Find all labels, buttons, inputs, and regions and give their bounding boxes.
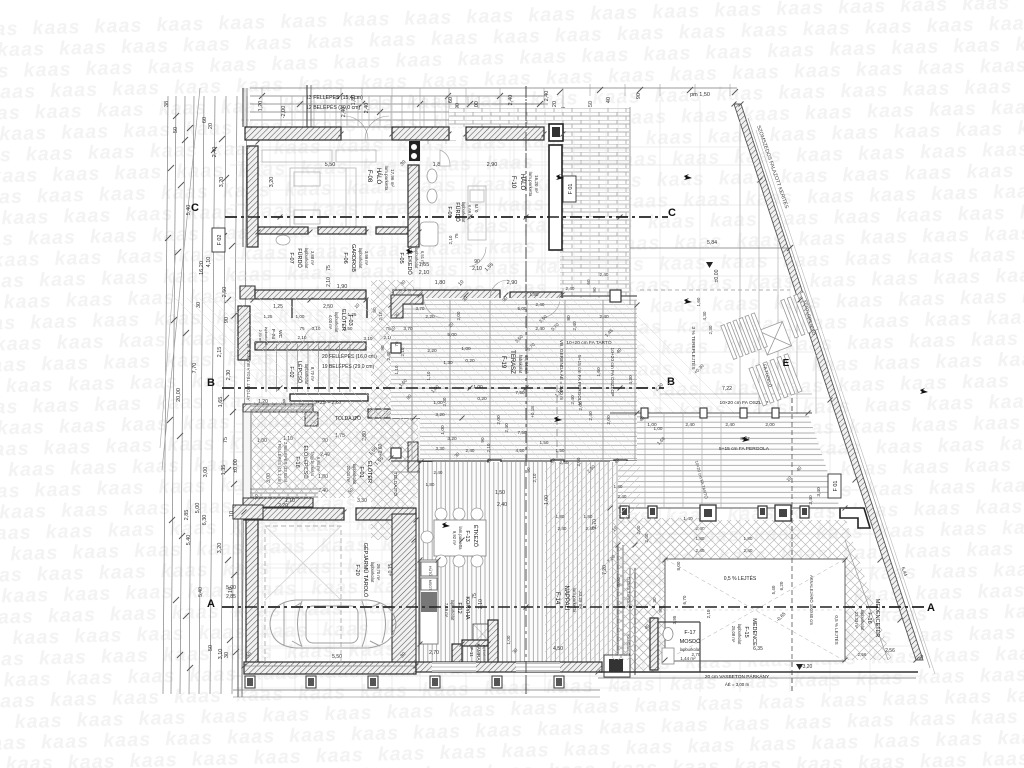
svg-text:3,40: 3,40	[808, 495, 814, 505]
svg-text:kaas: kaas	[112, 77, 161, 100]
svg-text:kaas: kaas	[705, 41, 754, 64]
svg-text:2,40: 2,40	[572, 321, 578, 331]
svg-text:2,90: 2,90	[507, 280, 518, 286]
svg-text:kaas: kaas	[486, 761, 535, 768]
svg-text:kaas: kaas	[1004, 600, 1024, 623]
svg-text:4,30: 4,30	[702, 311, 707, 320]
svg-text:kaas: kaas	[59, 36, 108, 59]
svg-text:kaas: kaas	[592, 86, 641, 109]
svg-text:C: C	[668, 207, 676, 219]
svg-text:kaas: kaas	[656, 168, 705, 191]
svg-text:HÁLÓ: HÁLÓ	[519, 174, 526, 191]
svg-text:2,10: 2,10	[419, 270, 430, 276]
svg-text:kaas: kaas	[362, 764, 411, 768]
svg-text:kaas: kaas	[546, 66, 595, 89]
svg-text:0,5 % LEJTÉS: 0,5 % LEJTÉS	[724, 575, 757, 582]
svg-text:1,25: 1,25	[348, 312, 357, 317]
svg-text:2,10: 2,10	[486, 443, 491, 452]
svg-text:kaas: kaas	[862, 310, 911, 333]
svg-text:kaas: kaas	[296, 597, 345, 620]
svg-text:3,99 m²: 3,99 m²	[364, 251, 369, 266]
svg-text:5,50: 5,50	[332, 654, 342, 660]
svg-text:3 % TEREPLEJTÉS: 3 % TEREPLEJTÉS	[690, 326, 697, 369]
svg-text:kaas: kaas	[778, 81, 827, 104]
svg-text:kaas: kaas	[926, 392, 975, 415]
svg-text:kaas: kaas	[183, 411, 232, 434]
svg-text:kaas: kaas	[845, 247, 894, 270]
svg-text:kaas: kaas	[0, 690, 37, 713]
svg-text:kaas: kaas	[935, 350, 984, 373]
svg-text:kaas: kaas	[3, 290, 52, 313]
svg-text:kaas: kaas	[191, 747, 240, 768]
svg-text:kaas: kaas	[65, 288, 114, 311]
svg-text:kaas: kaas	[1002, 516, 1024, 539]
svg-text:kaas: kaas	[944, 686, 993, 709]
svg-text:kaas: kaas	[63, 583, 112, 606]
svg-text:5,84: 5,84	[707, 240, 717, 246]
svg-text:kaas: kaas	[743, 103, 792, 126]
svg-text:kaas: kaas	[466, 5, 515, 28]
svg-text:kaas: kaas	[991, 96, 1024, 119]
svg-text:kaas: kaas	[643, 42, 692, 65]
svg-text:kaas: kaas	[262, 703, 311, 726]
svg-text:kaas: kaas	[922, 224, 971, 247]
svg-text:kaas: kaas	[333, 50, 382, 73]
svg-text:2,20: 2,20	[427, 348, 437, 354]
svg-text:kaas: kaas	[12, 626, 61, 649]
svg-text:3,20: 3,20	[269, 177, 275, 188]
svg-text:kaas: kaas	[696, 692, 745, 715]
svg-text:MSGT: MSGT	[428, 580, 432, 591]
svg-text:kaas: kaas	[0, 312, 17, 335]
svg-text:kaas: kaas	[968, 622, 1017, 645]
svg-text:kaas: kaas	[280, 10, 329, 33]
svg-text:50: 50	[173, 127, 179, 133]
svg-text:kaas: kaas	[94, 393, 143, 416]
svg-text:kaas: kaas	[34, 478, 83, 501]
svg-text:3,10: 3,10	[312, 326, 321, 331]
svg-text:TOLDAJTÓ: TOLDAJTÓ	[393, 472, 399, 496]
svg-text:5,00: 5,00	[518, 306, 527, 311]
svg-text:kaas: kaas	[92, 309, 141, 332]
svg-text:-2,00: -2,00	[281, 106, 287, 119]
svg-text:5,00: 5,00	[195, 503, 201, 514]
svg-text:kaas: kaas	[174, 685, 223, 708]
svg-text:kaas: kaas	[61, 120, 110, 143]
svg-text:kaas: kaas	[116, 245, 165, 268]
svg-text:10+20 cm FA OSZLOP: 10+20 cm FA OSZLOP	[609, 348, 615, 397]
svg-text:kaas: kaas	[931, 182, 980, 205]
svg-text:20: 20	[208, 123, 214, 129]
svg-text:8,00: 8,00	[616, 577, 621, 586]
svg-text:2,56: 2,56	[858, 652, 867, 657]
svg-text:1,80: 1,80	[556, 514, 565, 519]
svg-text:23,33 m²: 23,33 m²	[854, 612, 859, 629]
svg-text:kaas: kaas	[127, 665, 176, 688]
svg-text:7,50: 7,50	[515, 390, 525, 396]
svg-text:kaas: kaas	[820, 689, 869, 712]
svg-text:40: 40	[606, 97, 612, 103]
svg-text:kaas: kaas	[76, 708, 125, 731]
svg-text:kaas: kaas	[610, 757, 659, 768]
svg-text:kaas: kaas	[625, 736, 674, 759]
svg-text:2,40: 2,40	[644, 533, 649, 542]
svg-text:kaas: kaas	[176, 159, 225, 182]
svg-text:F 02: F 02	[217, 234, 223, 245]
svg-text:kaas: kaas	[32, 394, 81, 417]
svg-text:kaas: kaas	[608, 64, 657, 87]
svg-text:2,40: 2,40	[212, 147, 218, 158]
svg-text:ÉTKEZŐ: ÉTKEZŐ	[472, 525, 479, 548]
svg-text:5,00: 5,00	[226, 585, 236, 591]
svg-text:kaas: kaas	[85, 57, 134, 80]
svg-text:kaas: kaas	[1006, 684, 1024, 707]
svg-text:lapburkolat: lapburkolat	[352, 464, 357, 485]
svg-text:kaas: kaas	[34, 100, 83, 123]
svg-text:kaas: kaas	[980, 664, 1024, 687]
svg-text:F-05: F-05	[398, 252, 404, 263]
svg-text:kaas: kaas	[997, 726, 1024, 749]
svg-text:2,00: 2,00	[456, 311, 461, 320]
svg-text:60: 60	[202, 117, 208, 123]
svg-text:HÁLÓ: HÁLÓ	[375, 168, 382, 185]
svg-text:kaas: kaas	[114, 161, 163, 184]
svg-text:kaas: kaas	[99, 182, 148, 205]
svg-text:kaas: kaas	[973, 412, 1022, 435]
svg-text:kaas: kaas	[45, 520, 94, 543]
svg-text:F-19: F-19	[500, 356, 506, 369]
svg-text:FÜRDŐ: FÜRDŐ	[296, 248, 303, 268]
svg-text:7,20: 7,20	[602, 565, 608, 575]
svg-text:F-20: F-20	[354, 564, 360, 575]
svg-text:MEDENCE: MEDENCE	[751, 618, 757, 646]
svg-text:1,00: 1,00	[473, 384, 483, 390]
svg-text:kaas: kaas	[953, 34, 1002, 57]
svg-text:2,80: 2,80	[362, 431, 368, 441]
svg-text:kaas: kaas	[902, 456, 951, 479]
svg-text:kaas: kaas	[105, 434, 154, 457]
svg-text:10+20 cm FA TARTÓ: 10+20 cm FA TARTÓ	[566, 339, 611, 346]
svg-text:kaas: kaas	[991, 474, 1024, 497]
svg-text:kaas: kaas	[510, 697, 559, 720]
svg-text:kaas: kaas	[913, 497, 962, 520]
svg-text:kaas: kaas	[0, 144, 12, 167]
svg-text:kaas: kaas	[842, 163, 891, 186]
svg-text:1,80: 1,80	[426, 482, 435, 487]
svg-text:kaas: kaas	[198, 621, 247, 644]
svg-text:kaas: kaas	[997, 348, 1024, 371]
svg-text:kaas: kaas	[125, 581, 174, 604]
svg-text:20,01 m²: 20,01 m²	[346, 466, 351, 483]
svg-text:kaas: kaas	[101, 266, 150, 289]
svg-text:kaas: kaas	[439, 741, 488, 764]
svg-text:kaas: kaas	[0, 38, 46, 61]
svg-text:kaas: kaas	[904, 161, 953, 184]
svg-text:kaas: kaas	[271, 52, 320, 75]
svg-text:90: 90	[380, 345, 385, 351]
svg-text:kaas: kaas	[298, 681, 347, 704]
svg-text:kaas: kaas	[37, 562, 86, 585]
svg-text:2,10: 2,10	[326, 277, 332, 287]
svg-text:kaas: kaas	[871, 267, 920, 290]
svg-text:8,70 m²: 8,70 m²	[310, 367, 315, 382]
svg-text:kaas: kaas	[360, 680, 409, 703]
svg-text:kaas: kaas	[364, 239, 413, 262]
svg-text:2,50: 2,50	[344, 326, 353, 331]
svg-text:kaas: kaas	[721, 250, 770, 273]
svg-text:kaas: kaas	[134, 539, 183, 562]
svg-text:3,30: 3,30	[357, 498, 367, 504]
svg-text:kaas: kaas	[484, 67, 533, 90]
svg-text:kaas: kaas	[977, 580, 1024, 603]
svg-text:kaas: kaas	[838, 373, 887, 396]
svg-text:kaas: kaas	[0, 164, 39, 187]
svg-text:F 01: F 01	[568, 183, 574, 194]
svg-text:kaas: kaas	[924, 308, 973, 331]
svg-text:75: 75	[472, 593, 478, 599]
svg-text:kaas: kaas	[39, 646, 88, 669]
svg-text:kaas: kaas	[971, 706, 1020, 729]
svg-text:kaas: kaas	[860, 226, 909, 249]
svg-text:kaas: kaas	[847, 709, 896, 732]
svg-text:kaas: kaas	[1019, 200, 1024, 223]
svg-text:0,20: 0,20	[477, 396, 487, 402]
svg-text:75: 75	[326, 265, 332, 271]
svg-text:kaas: kaas	[26, 142, 75, 165]
svg-text:kaas: kaas	[56, 331, 105, 354]
svg-text:kaas: kaas	[858, 142, 907, 165]
svg-text:5,40: 5,40	[186, 535, 192, 546]
svg-text:kaas: kaas	[50, 688, 99, 711]
svg-text:30: 30	[652, 597, 657, 603]
svg-text:±0,00: ±0,00	[714, 269, 720, 282]
svg-text:F-13: F-13	[464, 530, 470, 541]
svg-text:0,5 % LEJTÉS: 0,5 % LEJTÉS	[834, 615, 840, 644]
svg-text:2,50: 2,50	[222, 287, 228, 298]
svg-text:F-08: F-08	[366, 170, 372, 183]
svg-text:lam.parketta: lam.parketta	[458, 526, 463, 550]
svg-text:F-07: F-07	[288, 252, 294, 263]
svg-text:kaas: kaas	[929, 98, 978, 121]
svg-text:kaas: kaas	[966, 538, 1015, 561]
svg-text:kaas: kaas	[50, 79, 99, 102]
svg-text:2,40: 2,40	[364, 103, 370, 114]
svg-text:kaas: kaas	[101, 645, 150, 668]
svg-text:75: 75	[299, 326, 305, 331]
svg-text:2,40: 2,40	[434, 470, 443, 475]
svg-text:kaas: kaas	[493, 25, 542, 48]
svg-text:fabakolat: fabakolat	[518, 355, 523, 374]
svg-text:4,50: 4,50	[553, 646, 563, 652]
svg-text:2,10: 2,10	[706, 609, 711, 618]
svg-text:kaas: kaas	[794, 59, 843, 82]
svg-text:kaas: kaas	[617, 22, 666, 45]
svg-text:9,92 m²: 9,92 m²	[452, 531, 457, 546]
svg-text:3,20: 3,20	[435, 412, 445, 418]
svg-text:kaas: kaas	[285, 178, 334, 201]
svg-text:lapburkolat: lapburkolat	[737, 624, 742, 645]
svg-text:kaas: kaas	[732, 61, 781, 84]
svg-text:29,70 m²: 29,70 m²	[376, 564, 381, 581]
svg-text:kaas: kaas	[1, 206, 50, 229]
svg-text:2,70: 2,70	[692, 652, 701, 657]
svg-text:50: 50	[588, 101, 594, 107]
svg-text:kaas: kaas	[43, 436, 92, 459]
svg-text:kaas: kaas	[110, 602, 159, 625]
svg-text:lam.parketta: lam.parketta	[384, 166, 389, 191]
svg-text:1,60: 1,60	[596, 367, 602, 377]
svg-text:kaas: kaas	[982, 748, 1024, 768]
svg-text:kaas: kaas	[926, 14, 975, 37]
svg-text:3,30: 3,30	[436, 446, 445, 451]
svg-text:kaas: kaas	[0, 606, 34, 629]
svg-text:kaas: kaas	[873, 729, 922, 752]
svg-text:1,60: 1,60	[696, 297, 701, 306]
svg-text:kaas: kaas	[723, 712, 772, 735]
svg-text:2,40: 2,40	[588, 411, 594, 421]
svg-text:2,40: 2,40	[725, 422, 735, 428]
svg-text:kaas: kaas	[322, 618, 371, 641]
svg-text:1,80: 1,80	[696, 536, 705, 541]
svg-text:kaas: kaas	[634, 694, 683, 717]
svg-text:kaas: kaas	[88, 141, 137, 164]
svg-text:kaas: kaas	[962, 370, 1011, 393]
svg-text:kaas: kaas	[377, 742, 426, 765]
svg-text:1,00: 1,00	[654, 426, 663, 431]
svg-text:1,80: 1,80	[435, 280, 446, 286]
svg-text:kaas: kaas	[993, 558, 1024, 581]
svg-text:kaas: kaas	[519, 45, 568, 68]
svg-text:kaas: kaas	[935, 728, 984, 751]
svg-text:2,40: 2,40	[508, 95, 514, 106]
svg-text:lapburkolat: lapburkolat	[334, 312, 339, 333]
svg-text:kaas: kaas	[840, 79, 889, 102]
svg-text:kaas: kaas	[712, 292, 761, 315]
svg-text:8,00: 8,00	[676, 561, 681, 570]
svg-text:kaas: kaas	[891, 36, 940, 59]
svg-text:2,00: 2,00	[636, 525, 641, 534]
svg-text:GARDROB: GARDROB	[350, 244, 356, 272]
svg-text:1,55: 1,55	[419, 262, 430, 268]
svg-text:kaas: kaas	[940, 518, 989, 541]
svg-text:kaas: kaas	[127, 287, 176, 310]
svg-text:kaas: kaas	[121, 35, 170, 58]
svg-text:lapburkolat: lapburkolat	[370, 562, 375, 583]
svg-text:kaas: kaas	[548, 759, 597, 768]
svg-text:kaas: kaas	[0, 80, 37, 103]
svg-text:1,50: 1,50	[540, 440, 549, 445]
svg-text:kaas: kaas	[236, 683, 285, 706]
svg-text:kaas: kaas	[546, 675, 595, 698]
svg-text:F-09: F-09	[446, 206, 452, 217]
svg-text:1,00: 1,00	[296, 314, 305, 319]
svg-text:kaas: kaas	[96, 99, 145, 122]
svg-text:30: 30	[224, 652, 230, 658]
svg-text:lapburkolat: lapburkolat	[358, 248, 363, 269]
svg-text:F-16: F-16	[866, 612, 872, 623]
svg-text:kaas: kaas	[284, 556, 333, 579]
svg-text:MOSDÓ: MOSDÓ	[680, 638, 702, 645]
svg-text:kaas: kaas	[847, 331, 896, 354]
svg-text:1,90: 1,90	[337, 284, 348, 290]
svg-text:kaas: kaas	[351, 722, 400, 745]
svg-text:kaas: kaas	[716, 82, 765, 105]
svg-text:kaas: kaas	[687, 734, 736, 757]
svg-text:kaas: kaas	[23, 58, 72, 81]
svg-text:5,50: 5,50	[325, 162, 336, 168]
svg-text:kaas: kaas	[209, 54, 258, 77]
svg-text:kaas: kaas	[158, 97, 207, 120]
svg-text:kaas: kaas	[0, 228, 15, 251]
svg-text:lapburkolat: lapburkolat	[450, 600, 455, 621]
svg-text:kaas: kaas	[156, 13, 205, 36]
svg-text:kaas: kaas	[882, 687, 931, 710]
svg-text:25,08 m²: 25,08 m²	[731, 626, 736, 643]
svg-text:1,00: 1,00	[544, 495, 550, 505]
svg-text:2,10: 2,10	[472, 266, 482, 272]
svg-text:kaas: kaas	[672, 756, 721, 768]
svg-text:kaas: kaas	[555, 24, 604, 47]
svg-text:kaas: kaas	[710, 209, 759, 232]
svg-text:kaas: kaas	[0, 522, 32, 545]
svg-text:kaas: kaas	[424, 762, 473, 768]
svg-text:F-14: F-14	[554, 592, 560, 605]
svg-text:kaas: kaas	[898, 288, 947, 311]
svg-text:kaas: kaas	[37, 184, 86, 207]
svg-text:kaas: kaas	[984, 222, 1024, 245]
svg-text:GÉPJÁRMŰ TÁROLÓ: GÉPJÁRMŰ TÁROLÓ	[362, 543, 369, 598]
svg-text:kaas: kaas	[858, 751, 907, 768]
svg-text:kaas: kaas	[982, 138, 1024, 161]
svg-text:kaas: kaas	[185, 495, 234, 518]
svg-text:2,40: 2,40	[504, 423, 510, 433]
svg-text:75: 75	[454, 233, 459, 239]
svg-text:4,00 m²: 4,00 m²	[328, 315, 333, 330]
svg-text:6,20: 6,20	[779, 581, 784, 590]
svg-text:kaas: kaas	[174, 75, 223, 98]
svg-text:kaas: kaas	[70, 456, 119, 479]
svg-text:kaas: kaas	[0, 332, 43, 355]
svg-text:kaas: kaas	[807, 185, 856, 208]
svg-text:kaas: kaas	[966, 160, 1015, 183]
svg-text:kaas: kaas	[918, 665, 967, 688]
svg-text:kaas: kaas	[563, 738, 612, 761]
svg-text:3,00: 3,00	[203, 467, 209, 478]
svg-text:kaas: kaas	[0, 480, 21, 503]
svg-text:1,80: 1,80	[584, 514, 593, 519]
svg-text:kaas: kaas	[41, 730, 90, 753]
svg-text:kaas: kaas	[324, 702, 373, 725]
svg-text:2,40: 2,40	[497, 502, 507, 508]
svg-text:kaas: kaas	[183, 33, 232, 56]
svg-text:kaas: kaas	[893, 120, 942, 143]
svg-text:kaas: kaas	[360, 71, 409, 94]
svg-text:kaas: kaas	[245, 32, 294, 55]
svg-text:B: B	[207, 377, 215, 389]
svg-text:kaas: kaas	[0, 18, 19, 41]
svg-text:kaas: kaas	[413, 720, 462, 743]
svg-text:kaas: kaas	[14, 710, 63, 733]
svg-text:kaas: kaas	[8, 458, 57, 481]
svg-text:kaas: kaas	[1015, 32, 1024, 55]
svg-text:90: 90	[658, 607, 663, 613]
svg-text:kaas: kaas	[537, 717, 586, 740]
svg-text:90: 90	[224, 317, 230, 323]
svg-text:2,40: 2,40	[685, 422, 695, 428]
svg-text:kaas: kaas	[129, 749, 178, 768]
svg-text:kaas: kaas	[749, 733, 798, 756]
svg-text:3,20: 3,20	[217, 543, 223, 554]
